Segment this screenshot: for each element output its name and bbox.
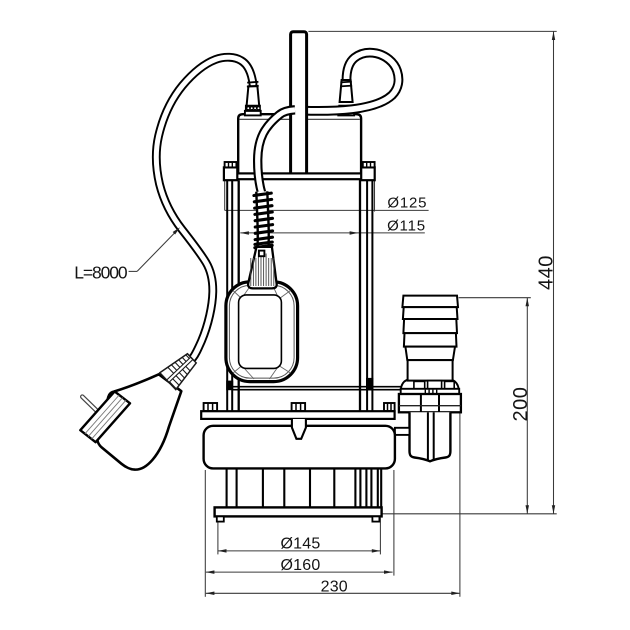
svg-text:440: 440 — [536, 255, 558, 290]
svg-text:200: 200 — [510, 387, 532, 422]
svg-text:Ø125: Ø125 — [387, 195, 427, 212]
svg-text:Ø115: Ø115 — [387, 218, 426, 235]
svg-text:Ø145: Ø145 — [281, 536, 321, 553]
svg-text:L=8000: L=8000 — [74, 263, 128, 283]
svg-text:Ø160: Ø160 — [281, 557, 321, 574]
svg-text:230: 230 — [321, 578, 348, 595]
